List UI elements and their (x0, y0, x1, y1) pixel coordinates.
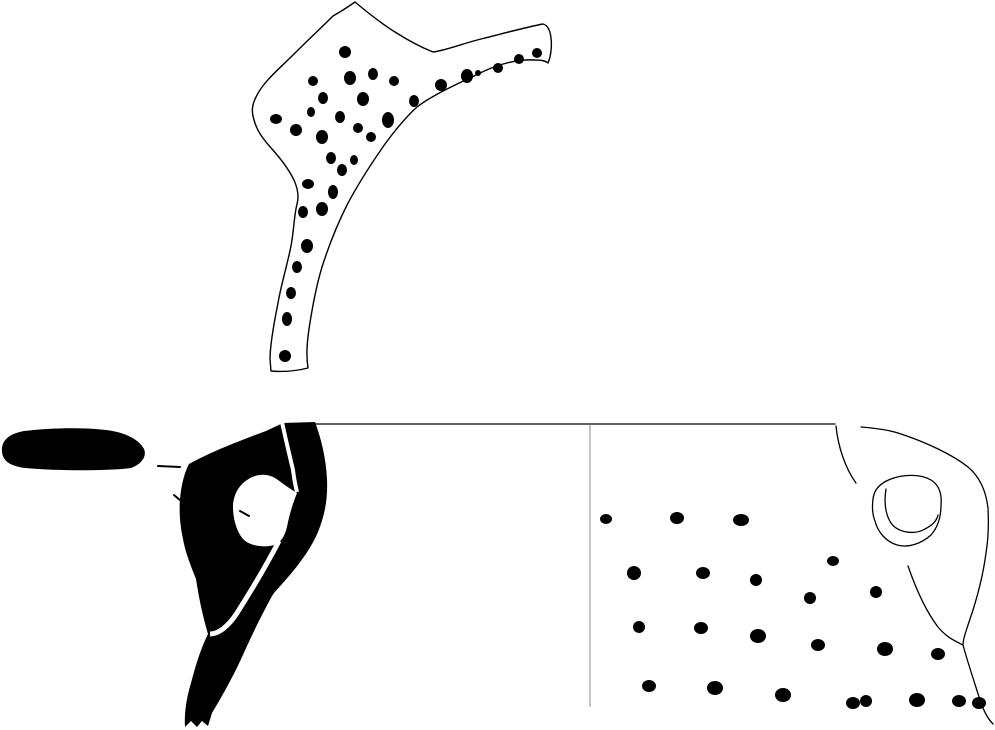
punctate-dot (301, 239, 313, 253)
punctate-dot (282, 312, 292, 326)
punctate-dot (290, 124, 302, 136)
punctate-dot (344, 71, 356, 85)
decorated-sherd-top (252, 2, 551, 371)
rim-section-blob (2, 428, 145, 470)
punctate-dot (339, 46, 351, 58)
punctate-dot (972, 697, 986, 709)
punctate-dot (877, 642, 893, 656)
sherd-outline (252, 2, 551, 371)
punctate-dot (733, 514, 749, 526)
punctate-dot (292, 261, 302, 273)
illustration-canvas (0, 0, 995, 730)
punctate-dot (308, 76, 318, 86)
handle-profile-left (2, 422, 327, 727)
punctate-dot (514, 54, 524, 64)
punctate-dot (670, 512, 684, 524)
punctate-dot (307, 107, 315, 117)
punctate-dot (952, 695, 966, 707)
body-contour-curve (908, 566, 963, 645)
punctate-dot (811, 639, 825, 651)
punctate-dot (696, 567, 710, 579)
punctate-dot (366, 132, 376, 142)
punctate-dot (860, 695, 872, 707)
punctate-dot (435, 79, 447, 91)
punctate-dot (286, 287, 296, 299)
punctate-dot (270, 114, 282, 124)
punctate-dot (750, 629, 766, 643)
punctate-dot (316, 202, 328, 216)
punctate-dot (382, 112, 394, 128)
handle-scar-outer (872, 475, 941, 546)
punctate-dot (846, 697, 860, 709)
punctate-dot (298, 206, 308, 218)
punctate-dot (600, 514, 612, 524)
illustration-page (0, 0, 995, 730)
punctate-dot (389, 76, 399, 86)
punctate-dot (642, 680, 656, 692)
punctate-dot (633, 621, 645, 633)
punctate-dot (804, 592, 816, 604)
handle-scar-inner (885, 489, 938, 532)
punctate-dot (350, 155, 358, 165)
punctate-dot (827, 556, 839, 566)
punctate-dot (750, 574, 762, 586)
punctate-dot (493, 63, 503, 73)
handle-attachment-curve (836, 426, 856, 483)
punctate-dot (475, 70, 481, 76)
punctate-dot (279, 350, 291, 362)
punctate-dot (357, 92, 369, 106)
punctate-dot (775, 688, 791, 702)
punctate-dot (316, 130, 328, 144)
punctate-dot (318, 92, 328, 104)
punctate-dot (461, 69, 473, 83)
tick-mark (174, 495, 181, 501)
vessel-view-right (313, 424, 993, 724)
punctate-dot (328, 185, 338, 199)
punctate-dot (326, 152, 336, 164)
punctate-dot (707, 681, 723, 695)
punctate-dot (694, 622, 708, 634)
rim-and-right-contour (861, 427, 993, 724)
profile-silhouette (180, 422, 328, 727)
punctate-dot (627, 566, 641, 580)
punctate-dot (409, 95, 419, 107)
punctate-dot (931, 648, 945, 660)
punctate-dot (532, 48, 542, 58)
punctate-dot (335, 111, 345, 123)
tick-mark (158, 466, 180, 467)
punctate-dot (337, 164, 347, 176)
punctate-dot (353, 123, 363, 133)
punctate-dot (302, 179, 314, 189)
punctate-dot (368, 68, 378, 80)
punctate-dot (870, 586, 882, 598)
punctate-dot (909, 693, 925, 707)
